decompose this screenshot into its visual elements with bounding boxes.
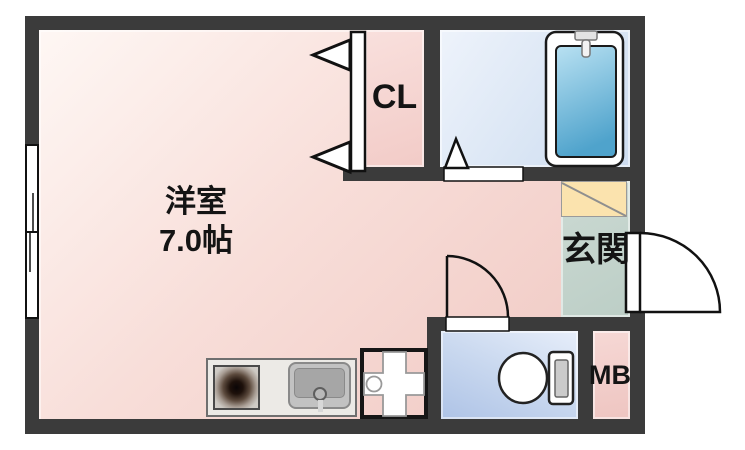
wall-top	[25, 16, 645, 30]
floor-plan: 洋室 7.0帖 CL 玄関 MB	[0, 0, 745, 450]
main-room-label: 洋室	[120, 186, 272, 219]
wall-below-bath	[343, 167, 630, 181]
wall-bottom	[25, 419, 645, 434]
entrance-label: 玄関	[546, 233, 646, 269]
wall-toilet-left	[427, 317, 441, 434]
bathroom-floor	[440, 30, 630, 167]
wall-left	[25, 16, 39, 434]
toilet-room-floor	[441, 331, 578, 419]
closet-label: CL	[365, 80, 424, 116]
wall-toilet-top	[427, 317, 645, 331]
kitchen-faucet-stem	[318, 400, 323, 412]
main-room-size: 7.0帖	[110, 225, 282, 258]
washing-machine-pan	[360, 348, 428, 419]
kitchen-stove	[213, 365, 260, 410]
meter-box-label: MB	[583, 361, 637, 389]
kitchen-faucet	[313, 387, 327, 401]
wall-closet-bath-divider	[424, 16, 440, 181]
entrance-step	[561, 181, 627, 217]
